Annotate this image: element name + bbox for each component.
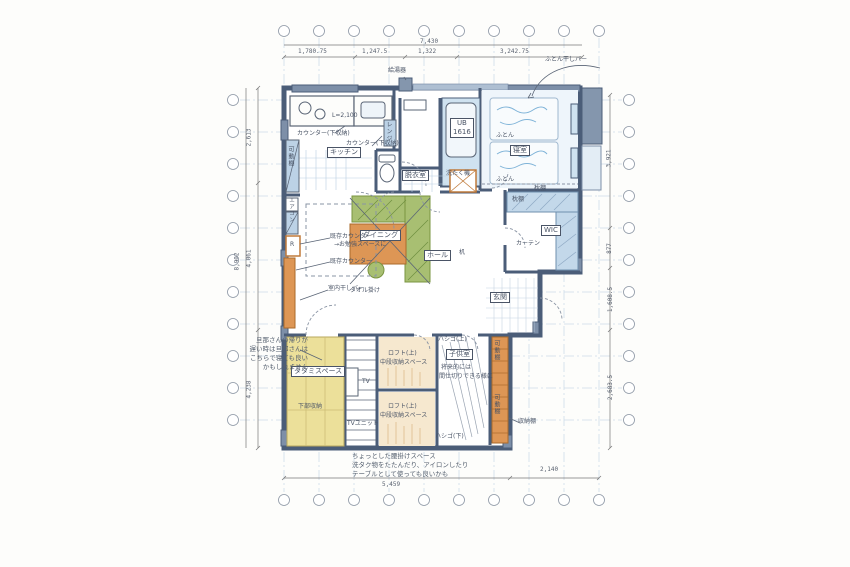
room-label-kitchen: キッチン <box>327 147 361 158</box>
bench-note-line-3: テーブルとして使っても良いかも <box>352 470 468 479</box>
movable-shelf-b-label: 可動棚 <box>493 394 500 415</box>
dim-left-seg-3: 4,238 <box>246 380 253 398</box>
room-label-unit-bath: UB1616 <box>450 118 474 138</box>
movable-shelf-a-label: 可動棚 <box>493 340 500 361</box>
storage-shelf-label: 収納棚 <box>518 418 536 425</box>
dim-left-seg-1: 2,613 <box>246 128 253 146</box>
tv-label: TV <box>362 378 370 385</box>
movable-shelf-left-label: 可動棚 <box>287 146 294 167</box>
dim-left-total: 8,902 <box>234 252 241 270</box>
dim-top-seg-2: 1,247.5 <box>362 48 387 55</box>
water-heater-label: 給湯器 <box>388 67 406 74</box>
aircon-label: エアコン <box>287 197 294 223</box>
dim-top-total: 7,430 <box>420 38 438 45</box>
dim-right-seg-3: 1,608.5 <box>607 287 614 312</box>
futon-label-1: ふとん <box>496 132 514 139</box>
nap-note-line-2: 遅い時は旦那さんは <box>222 345 308 354</box>
room-label-dressing: 脱衣室 <box>402 170 429 181</box>
room-label-bedroom: 寝室 <box>510 145 530 156</box>
lower-storage-label: 下部収納 <box>298 403 322 410</box>
counter-label-1: カウンター(下収納) <box>297 130 350 137</box>
nap-note-line-1: 旦那さんの帰りが <box>222 336 308 345</box>
ladder-up-label: ハシゴ(上) <box>438 336 467 343</box>
unit-bath-name: UB <box>457 119 467 127</box>
nap-note-line-3: こちらで寝ても良い <box>222 354 308 363</box>
pillow-shelf-bedroom-label: 枕棚 <box>534 185 546 192</box>
futon-drying-bar-label: ふとん干しバー <box>545 56 587 63</box>
dim-right-seg-2: 877 <box>606 243 613 254</box>
washer-label: 洗たく機 <box>446 170 470 177</box>
counter-length-label: L=2,100 <box>332 112 358 119</box>
floor-plan-drawing <box>0 0 850 567</box>
towel-bar-label: タオル掛け <box>350 287 380 294</box>
nap-note-line-4: かもしれません <box>222 363 308 372</box>
curtain-label: カーテン <box>516 240 540 247</box>
room-label-entrance: 玄関 <box>490 292 510 303</box>
nap-note: 旦那さんの帰りが 遅い時は旦那さんは こちらで寝ても良い かもしれません <box>222 336 308 372</box>
ladder-down-label: ハシゴ(下) <box>435 433 464 440</box>
existing-counter-study-label-2: →お勉強スペースに <box>334 241 386 248</box>
kids-note-line-2: 間仕切りできる様に <box>439 373 493 380</box>
dim-right-seg-4: 2,683.5 <box>607 375 614 400</box>
futon-label-2: ふとん <box>496 176 514 183</box>
existing-counter-label: 既存カウンター <box>330 258 372 265</box>
floor-plan-page: キッチン UB1616 脱衣室 寝室 WIC ダイニング ホール 玄関 タタミス… <box>0 0 850 567</box>
fridge-label: R <box>290 241 294 248</box>
dim-top-seg-3: 1,322 <box>418 48 436 55</box>
bench-note: ちょっとした腰掛けスペース 洗タク物をたたんだり、アイロンしたり テーブルとして… <box>352 452 468 479</box>
kids-note-line-1: 将来的には <box>441 364 471 371</box>
loft-b-sub-label: 中段収納スペース <box>380 412 427 419</box>
bench-note-line-2: 洗タク物をたたんだり、アイロンしたり <box>352 461 468 470</box>
range-label: レンジ <box>385 121 392 142</box>
loft-b-label: ロフト(上) <box>388 403 417 410</box>
dim-bottom-seg-1: 5,459 <box>382 481 400 488</box>
dim-bottom-seg-2: 2,140 <box>540 466 558 473</box>
room-label-wic: WIC <box>541 225 561 236</box>
tv-unit-label: TVユニット <box>347 420 379 427</box>
bench-note-line-1: ちょっとした腰掛けスペース <box>352 452 468 461</box>
room-label-hall: ホール <box>424 250 451 261</box>
room-label-kids: 子供室 <box>446 349 473 360</box>
dim-right-seg-1: 3,921 <box>606 149 613 167</box>
loft-a-label: ロフト(上) <box>388 350 417 357</box>
dim-top-seg-4: 3,242.75 <box>500 48 529 55</box>
dim-top-seg-1: 1,780.75 <box>298 48 327 55</box>
desk-label: 机 <box>459 249 465 256</box>
dim-left-seg-2: 4,061 <box>246 249 253 267</box>
existing-counter-study-label-1: 既存カウンター <box>330 233 372 240</box>
pillow-shelf-wic-label: 枕棚 <box>512 196 524 203</box>
unit-bath-size: 1616 <box>453 128 471 136</box>
loft-a-sub-label: 中段収納スペース <box>380 359 427 366</box>
